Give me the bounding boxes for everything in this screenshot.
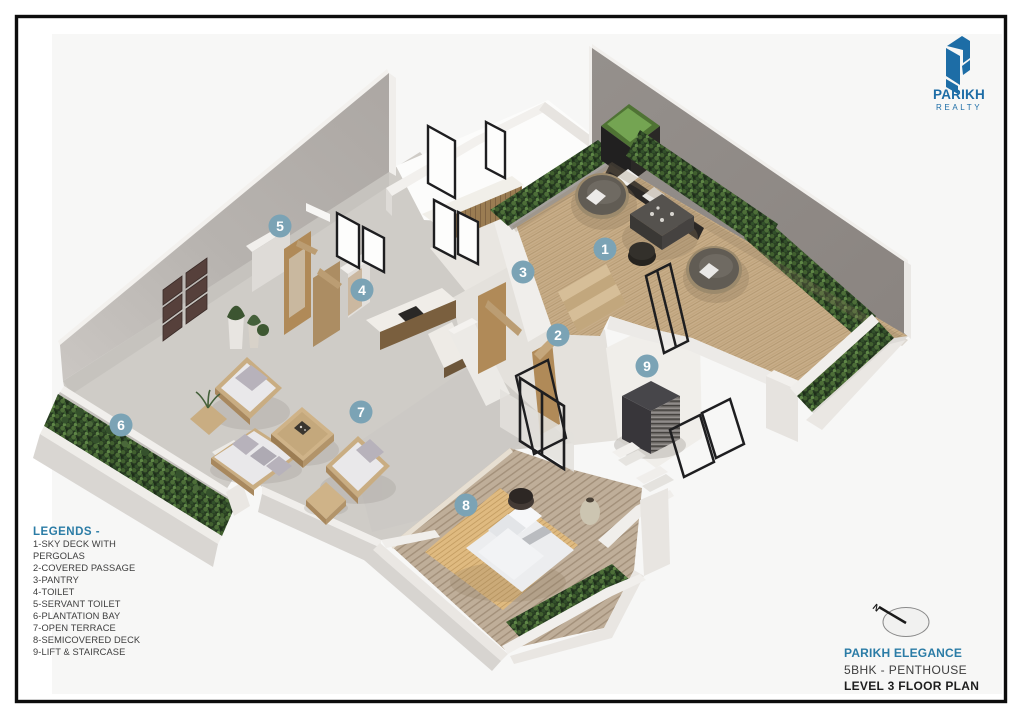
svg-text:8: 8 (462, 497, 470, 513)
svg-text:4-TOILET: 4-TOILET (33, 587, 75, 597)
svg-text:5: 5 (276, 218, 284, 234)
svg-text:7: 7 (357, 404, 365, 420)
svg-text:LEVEL 3 FLOOR PLAN: LEVEL 3 FLOOR PLAN (844, 679, 979, 693)
svg-text:9: 9 (643, 358, 651, 374)
svg-text:8-SEMICOVERED DECK: 8-SEMICOVERED DECK (33, 635, 141, 645)
svg-text:3: 3 (519, 264, 527, 280)
svg-text:PERGOLAS: PERGOLAS (33, 551, 85, 561)
svg-text:PARIKH: PARIKH (933, 87, 985, 102)
svg-text:REALTY: REALTY (936, 103, 982, 112)
svg-text:3-PANTRY: 3-PANTRY (33, 575, 79, 585)
svg-text:2: 2 (554, 327, 562, 343)
svg-text:4: 4 (358, 282, 366, 298)
svg-text:1: 1 (601, 241, 609, 257)
svg-text:5-SERVANT TOILET: 5-SERVANT TOILET (33, 599, 121, 609)
svg-text:6-PLANTATION BAY: 6-PLANTATION BAY (33, 611, 120, 621)
svg-text:LEGENDS -: LEGENDS - (33, 526, 100, 538)
svg-text:5BHK - PENTHOUSE: 5BHK - PENTHOUSE (844, 663, 967, 677)
svg-text:6: 6 (117, 417, 125, 433)
svg-text:PARIKH ELEGANCE: PARIKH ELEGANCE (844, 646, 962, 660)
svg-text:9-LIFT & STAIRCASE: 9-LIFT & STAIRCASE (33, 647, 125, 657)
svg-text:2-COVERED PASSAGE: 2-COVERED PASSAGE (33, 563, 135, 573)
svg-text:1-SKY DECK WITH: 1-SKY DECK WITH (33, 539, 116, 549)
svg-text:7-OPEN TERRACE: 7-OPEN TERRACE (33, 623, 116, 633)
